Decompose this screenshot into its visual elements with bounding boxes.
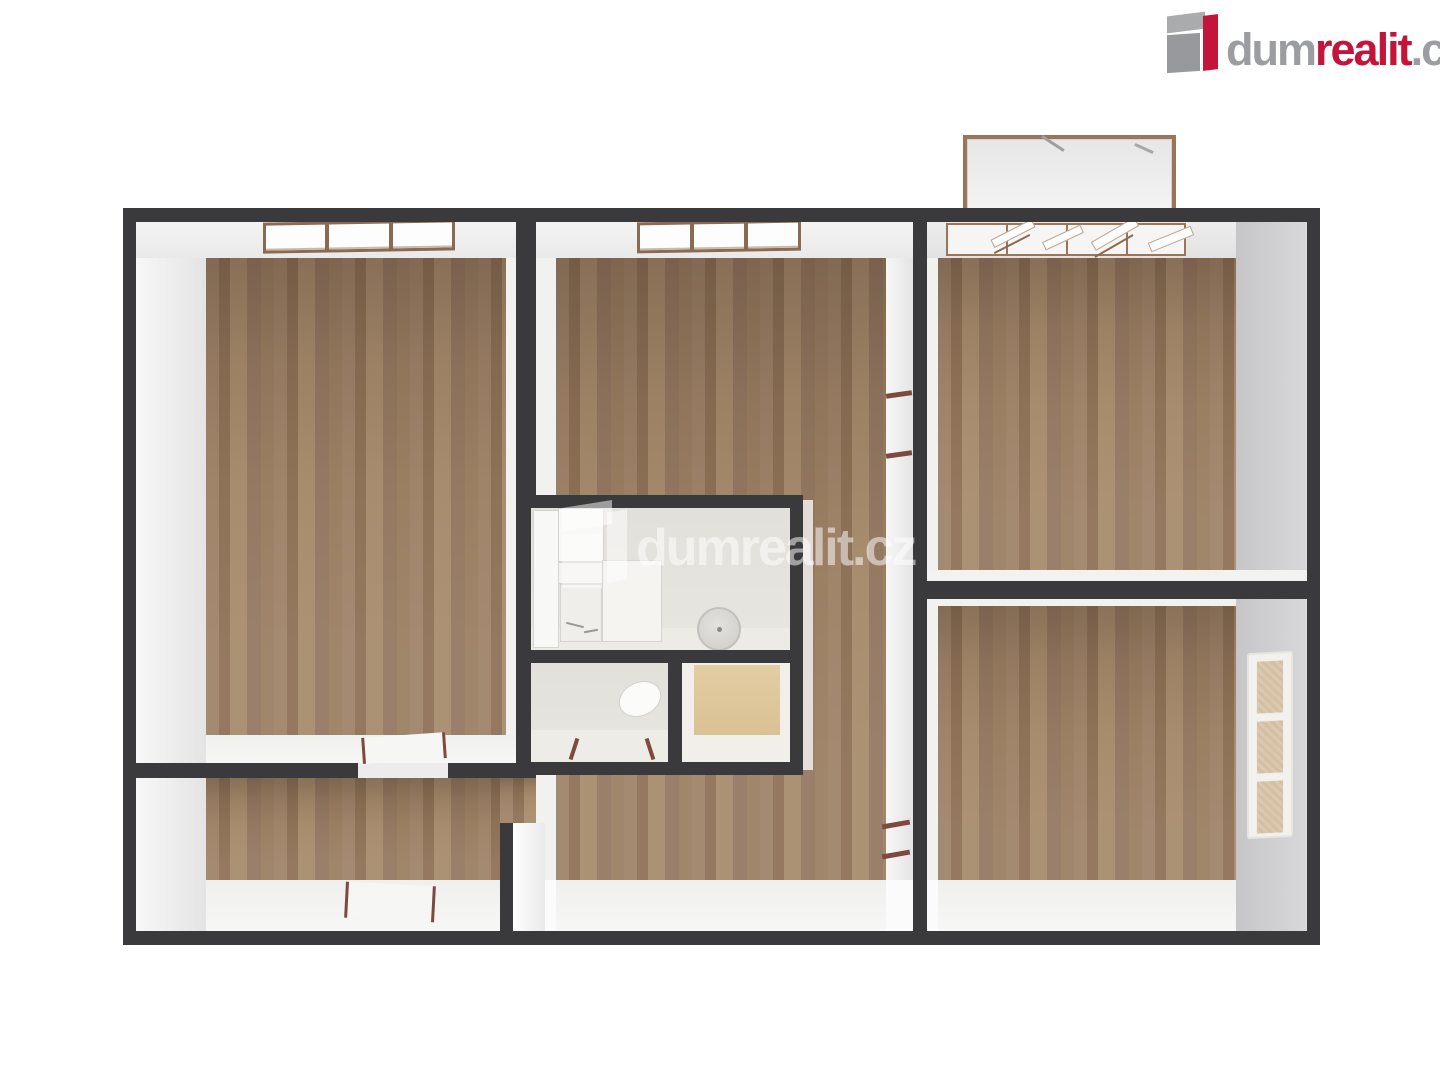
- room-top-left-floor: [206, 258, 506, 735]
- bathroom-sink-cabinet: [560, 584, 602, 642]
- window-top-left-room: [263, 219, 455, 253]
- room-bottom-right-floor: [938, 599, 1236, 880]
- floorplan-render-page: { "logo": { "text_dum": "dum", "text_rea…: [0, 0, 1440, 1080]
- logo-text-dum: dum: [1226, 24, 1315, 75]
- room-top-right-floor: [938, 258, 1236, 570]
- door-opening-top-left-room: [358, 763, 448, 778]
- bathtub: [533, 510, 559, 648]
- logo-icon-column: [1203, 14, 1218, 71]
- watermark-icon-column: [607, 509, 627, 582]
- room-top-right-left-sliver: [926, 258, 938, 570]
- left-wall-face: [136, 222, 206, 931]
- room-middle-bottom-strip: [556, 880, 886, 931]
- window-middle-room: [637, 220, 801, 254]
- window-pane: [694, 224, 744, 250]
- outer-wall-bottom: [123, 931, 1320, 945]
- outer-wall-right: [1307, 208, 1320, 945]
- closet-floor-beige: [694, 665, 780, 735]
- watermark-icon-body: [562, 534, 602, 588]
- radiator-panel: [1256, 779, 1284, 834]
- wall-stub-face: [513, 823, 545, 931]
- window-pane: [329, 223, 388, 249]
- bath-block-wall-top: [518, 495, 803, 508]
- bath-block-wall-bottom: [518, 762, 803, 775]
- window-pane: [748, 223, 798, 249]
- hallway-floor: [206, 778, 500, 880]
- room-bottom-right-bottom-strip: [938, 880, 1236, 931]
- radiator-panel: [1256, 719, 1284, 774]
- bath-block-wall-middle: [518, 650, 803, 663]
- logo-text-cz: .cz: [1411, 24, 1440, 75]
- window-pane: [393, 222, 452, 248]
- wall-stub-dark: [500, 823, 513, 931]
- window-pane: [640, 225, 690, 251]
- room-top-left-right-sliver: [506, 258, 516, 735]
- bath-block-wall-left: [518, 495, 531, 775]
- entry-door-leaf: [344, 882, 436, 923]
- right-rooms-divider-top: [926, 570, 1307, 581]
- right-rooms-divider-wall: [926, 581, 1307, 599]
- right-rooms-divider-south-sliver: [938, 599, 1236, 606]
- outer-wall-top: [123, 208, 1320, 222]
- watermark-text: dumrealit.cz: [636, 518, 915, 578]
- radiator-panel: [1256, 659, 1284, 714]
- room-bottom-right-left-sliver: [926, 599, 938, 880]
- logo-icon-body: [1167, 33, 1200, 73]
- radiator: [1247, 651, 1293, 839]
- logo-text-realit: realit: [1315, 24, 1411, 75]
- bath-block-wall-wc-closet: [668, 650, 682, 775]
- washing-machine-center-dot: [717, 627, 722, 632]
- logo-text: dumrealit.cz: [1226, 24, 1440, 76]
- window-pane: [266, 225, 325, 251]
- outer-wall-left: [123, 208, 136, 945]
- wall-top-left-room-bottom-a: [123, 763, 358, 778]
- logo-icon-roof: [1167, 12, 1205, 34]
